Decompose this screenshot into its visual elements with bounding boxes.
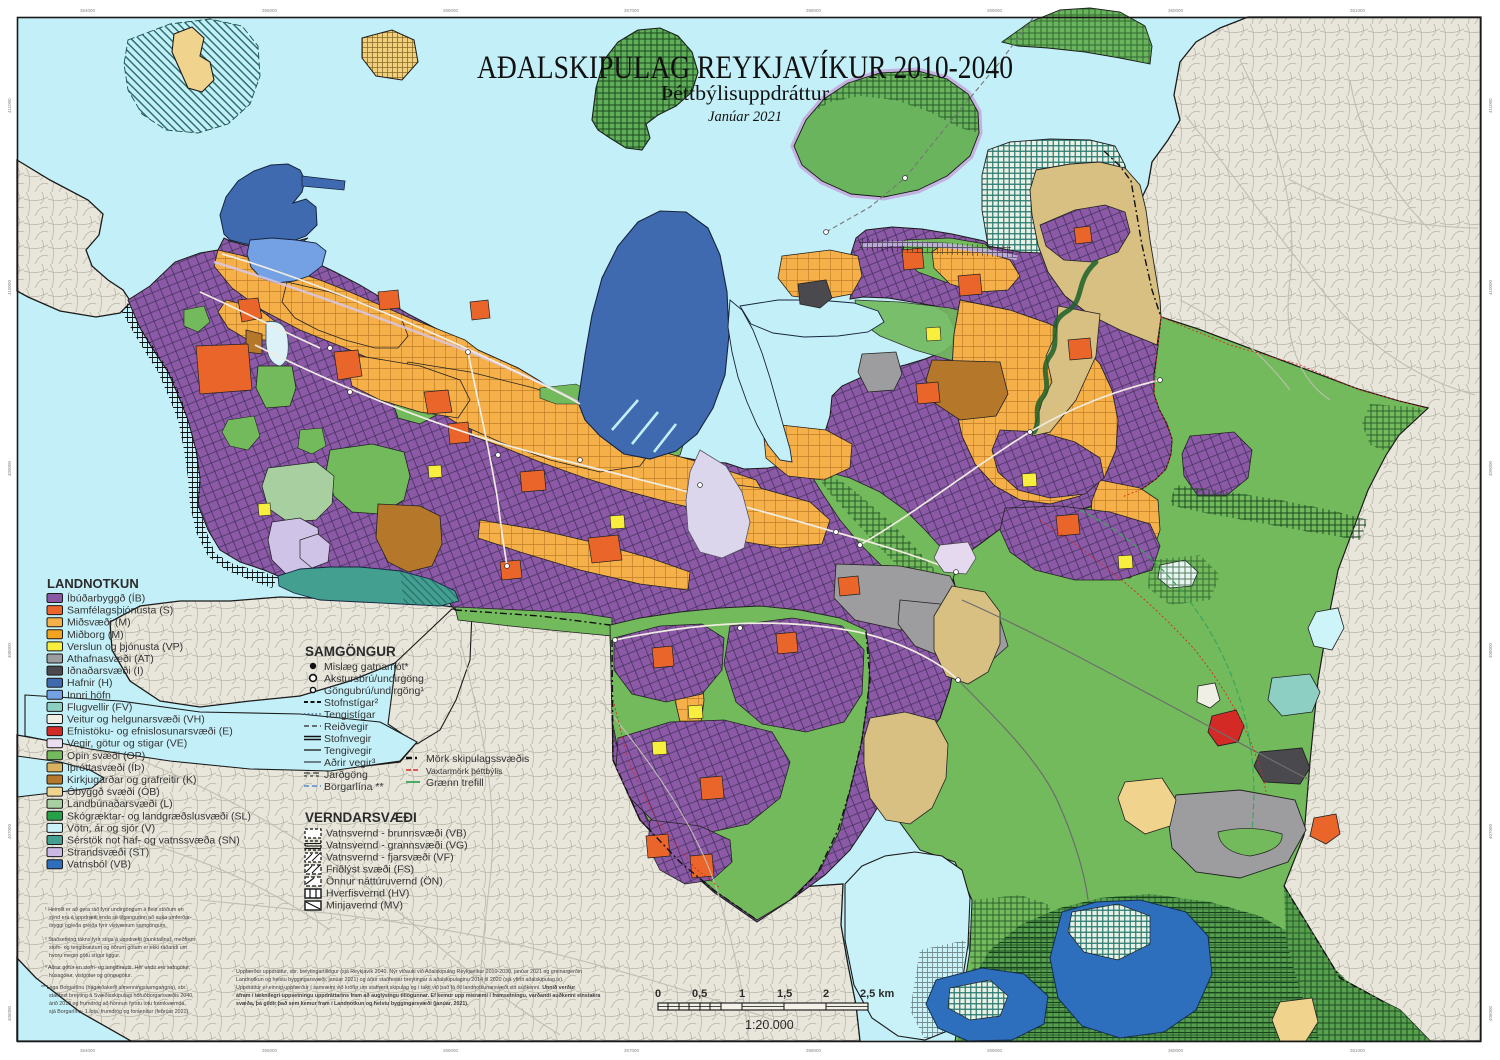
svg-text:357000: 357000 [624,1048,640,1053]
svg-text:Íbúðarbyggð (ÍB): Íbúðarbyggð (ÍB) [67,592,145,605]
svg-text:öryggi og/eða greiða fyrir vis: öryggi og/eða greiða fyrir vistvænum sam… [49,922,167,929]
svg-text:VERNDARSVÆÐI: VERNDARSVÆÐI [305,810,417,825]
svg-text:Mislæg gatnamót*: Mislæg gatnamót* [324,661,409,673]
svg-text:² Staðsetning tákns fyrir stíg: ² Staðsetning tákns fyrir stíga á uppdræ… [45,936,196,943]
svg-text:áfram í tæknilegri uppsetningu: áfram í tæknilegri uppsetningu uppdrátta… [236,992,600,999]
svg-text:Vaxtarmörk þéttbýlis: Vaxtarmörk þéttbýlis [426,766,502,776]
svg-text:355000: 355000 [262,1048,278,1053]
svg-text:Skógræktar- og landgræðslusvæð: Skógræktar- og landgræðslusvæði (SL) [67,810,251,822]
svg-text:411000: 411000 [1488,98,1493,113]
svg-text:361000: 361000 [1350,8,1366,13]
svg-text:Jarðgöng: Jarðgöng [324,769,368,781]
svg-text:2,5 km: 2,5 km [860,988,894,1000]
svg-text:¹ Heimilt er að gera ráð fyrir: ¹ Heimilt er að gera ráð fyrir undirgöng… [45,906,184,913]
svg-text:svæða, þá gildir það sem kemur: svæða, þá gildir það sem kemur fram í La… [236,1000,469,1007]
svg-text:Minjavernd (MV): Minjavernd (MV) [326,900,403,912]
svg-text:Opin svæði (OP): Opin svæði (OP) [67,750,145,762]
svg-text:406000: 406000 [1488,1005,1493,1021]
svg-text:Kirkjugarðar og grafreitir (K: Kirkjugarðar og grafreitir (K) [67,774,197,786]
svg-text:1,5: 1,5 [777,988,792,1000]
svg-text:Vatnsvernd - fjarsvæði (VF): Vatnsvernd - fjarsvæði (VF) [326,852,454,864]
svg-text:Vegir, götur og stigar (VE): Vegir, götur og stigar (VE) [67,738,187,750]
svg-text:Stofnvegir: Stofnvegir [324,733,372,745]
svg-text:Athafnasvæði (AT): Athafnasvæði (AT) [67,653,154,665]
svg-text:Vatnsból (VB): Vatnsból (VB) [67,859,131,871]
svg-text:Landbúnaðarsvæði (L): Landbúnaðarsvæði (L) [67,798,173,810]
svg-text:Innri höfn: Innri höfn [67,689,111,701]
svg-text:357000: 357000 [624,8,640,13]
svg-text:sýnd eru á uppdrætti enda sé t: sýnd eru á uppdrætti enda sé tilgangurin… [49,914,192,921]
svg-text:Friðlýst svæði (FS): Friðlýst svæði (FS) [326,864,414,876]
svg-text:361000: 361000 [1350,1048,1366,1053]
svg-text:407000: 407000 [1488,823,1493,839]
svg-text:Akstursbrú/undirgöng: Akstursbrú/undirgöng [324,673,424,685]
svg-text:Þéttbýlisuppdráttur: Þéttbýlisuppdráttur [661,81,829,105]
svg-text:LANDNOTKUN: LANDNOTKUN [47,576,139,591]
svg-text:Flugvellir (FV): Flugvellir (FV) [67,701,132,713]
svg-text:³ Aðrar götur en stofn- og ten: ³ Aðrar götur en stofn- og tengibrautir.… [45,964,190,971]
svg-text:358000: 358000 [806,8,822,13]
svg-text:Landnotkun og helstu byggingar: Landnotkun og helstu byggingarsvæði, jan… [236,976,563,983]
svg-text:Sérstök not haf- og vatnssvæða: Sérstök not haf- og vatnssvæða (SN) [67,835,240,847]
svg-text:359000: 359000 [987,1048,1003,1053]
svg-text:Samfélagsþjónusta (S): Samfélagsþjónusta (S) [67,605,173,617]
svg-text:0: 0 [655,988,661,1000]
svg-text:Vatnsvernd - grannsvæði (VG): Vatnsvernd - grannsvæði (VG) [326,840,468,852]
svg-text:410000: 410000 [7,279,12,295]
svg-text:húsagötur, vistgötur og göngug: húsagötur, vistgötur og göngugötur. [49,973,132,979]
svg-text:SAMGÖNGUR: SAMGÖNGUR [305,644,396,659]
svg-text:Uppfærður uppdráttur, sbr. bre: Uppfærður uppdráttur, sbr. breytingartil… [236,968,582,975]
svg-text:408000: 408000 [7,642,12,658]
svg-text:Mörk skipulagssvæðis: Mörk skipulagssvæðis [426,753,529,765]
svg-text:410000: 410000 [1488,279,1493,295]
svg-text:1:20.000: 1:20.000 [745,1018,794,1032]
svg-text:406000: 406000 [7,1005,12,1021]
svg-text:0,5: 0,5 [692,988,707,1000]
svg-text:2: 2 [823,988,829,1000]
svg-text:Aðrir vegir³: Aðrir vegir³ [324,757,376,769]
svg-text:stofn- og tengibrautum og öðru: stofn- og tengibrautum og öðrum götum er… [49,944,188,951]
svg-text:Stofnstígar²: Stofnstígar² [324,697,379,709]
svg-text:Hverfisvernd (HV): Hverfisvernd (HV) [326,888,409,900]
svg-text:360000: 360000 [1168,1048,1184,1053]
svg-text:Efnistöku- og efnislosunarsvæð: Efnistöku- og efnislosunarsvæði (E) [67,726,233,738]
svg-text:Tengistígar: Tengistígar [324,709,376,721]
svg-text:Strandsvæði (ST): Strandsvæði (ST) [67,847,149,859]
svg-text:Önnur náttúruvernd (ÖN): Önnur náttúruvernd (ÖN) [326,876,443,888]
svg-text:407000: 407000 [7,823,12,839]
svg-text:354000: 354000 [80,1048,96,1053]
svg-text:árið 2018 og frumdrög að hönnu: árið 2018 og frumdrög að hönnun fyrstu l… [49,1000,186,1007]
svg-text:Reiðvegir: Reiðvegir [324,721,369,733]
svg-text:Borgarlína **: Borgarlína ** [324,781,384,793]
svg-text:hvoru megin götu stígur liggur: hvoru megin götu stígur liggur. [49,953,120,959]
svg-text:354000: 354000 [80,8,96,13]
svg-text:Uppdráttur er einnig uppfærður: Uppdráttur er einnig uppfærður í samræmi… [236,984,575,991]
svg-text:356000: 356000 [443,8,459,13]
svg-text:** Lega Borgarlínu (hágæðakerf: ** Lega Borgarlínu (hágæðakerfi almennin… [41,984,186,991]
svg-text:Vötn, ár og sjór (V): Vötn, ár og sjór (V) [67,822,155,834]
svg-text:Óbyggð svæði (ÓB): Óbyggð svæði (ÓB) [67,785,160,798]
svg-text:408000: 408000 [1488,642,1493,658]
svg-text:Tengivegir: Tengivegir [324,745,372,757]
svg-text:356000: 356000 [443,1048,459,1053]
svg-text:409000: 409000 [1488,460,1493,476]
svg-text:359000: 359000 [987,8,1003,13]
svg-text:sjá Borgarlína- 1.lota, frumdr: sjá Borgarlína- 1.lota, frumdrög og fors… [49,1009,190,1015]
svg-text:Veitur og helgunarsvæði (VH): Veitur og helgunarsvæði (VH) [67,714,205,726]
svg-text:411000: 411000 [7,98,12,113]
svg-text:360000: 360000 [1168,8,1184,13]
svg-text:Miðsvæði (M): Miðsvæði (M) [67,617,131,629]
svg-text:staðfest breyting á Svæðisski: staðfest breyting á Svæðisskipulagi höfu… [49,992,194,999]
svg-text:355000: 355000 [262,8,278,13]
svg-text:Grænn trefill: Grænn trefill [426,777,484,789]
svg-text:1: 1 [739,988,745,1000]
svg-text:Miðborg (M): Miðborg (M) [67,629,124,641]
svg-text:358000: 358000 [806,1048,822,1053]
svg-text:409000: 409000 [7,460,12,476]
svg-text:Vatnsvernd - brunnsvæði (VB): Vatnsvernd - brunnsvæði (VB) [326,828,466,840]
svg-text:Hafnir (H): Hafnir (H) [67,677,113,689]
svg-text:Verslun og þjónusta (VP): Verslun og þjónusta (VP) [67,641,183,653]
svg-text:Iðnaðarsvæði (I): Iðnaðarsvæði (I) [67,665,143,677]
svg-text:Janúar 2021: Janúar 2021 [708,109,782,125]
svg-text:Íþróttasvæði (ÍÞ): Íþróttasvæði (ÍÞ) [67,761,145,774]
svg-text:Göngubrú/undirgöng¹: Göngubrú/undirgöng¹ [324,685,424,697]
